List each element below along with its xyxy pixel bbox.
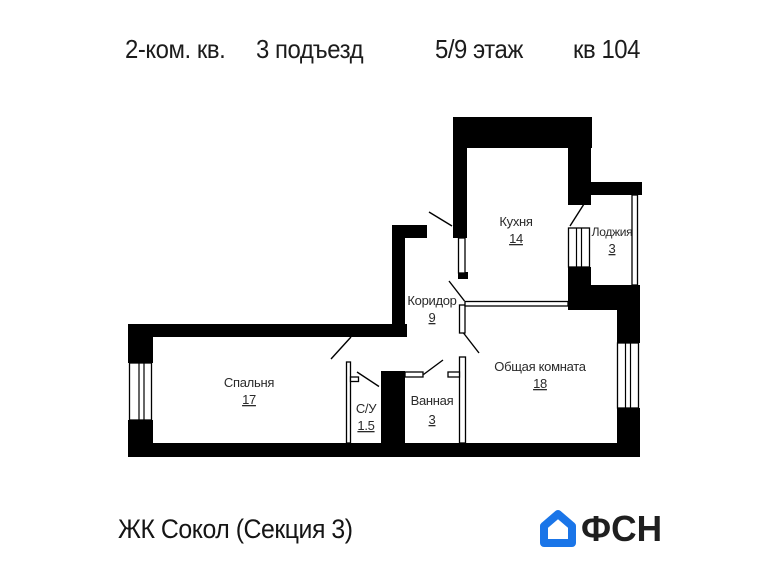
room-label-living: Общая комната bbox=[494, 359, 586, 374]
partition-bath-jamb-left bbox=[405, 372, 423, 377]
room-label-kitchen: Кухня bbox=[499, 214, 533, 229]
room-area-corridor: 9 bbox=[429, 310, 436, 325]
wall-living-right-upper bbox=[617, 310, 640, 343]
door-bath-swing bbox=[424, 360, 444, 375]
door-entrance-swing bbox=[429, 212, 452, 226]
partition-bath-right bbox=[460, 357, 466, 443]
window-kitchen-loggia bbox=[569, 228, 590, 267]
wall-kitchen-top bbox=[453, 117, 592, 148]
wall-kitchen-left bbox=[453, 117, 467, 238]
room-area-bedroom: 17 bbox=[242, 392, 256, 407]
partition-kitchen-jamb bbox=[459, 238, 466, 273]
partition-living-top bbox=[465, 302, 568, 307]
window-bedroom bbox=[130, 363, 152, 420]
house-icon bbox=[538, 509, 578, 549]
project-name-label: ЖК Сокол (Секция 3) bbox=[118, 514, 353, 545]
door-bedroom-swing bbox=[331, 337, 351, 359]
wall-entry-vertical bbox=[392, 225, 405, 337]
developer-logo: ФСН bbox=[538, 508, 664, 550]
wall-bottom bbox=[128, 443, 640, 457]
room-label-bath: Ванная bbox=[411, 393, 454, 408]
partition-wc-left bbox=[347, 362, 351, 443]
window-living bbox=[618, 343, 639, 408]
room-area-wc: 1.5 bbox=[357, 418, 374, 433]
room-label-wc: С/У bbox=[356, 401, 377, 416]
wall-bedroom-top bbox=[128, 324, 407, 337]
room-label-loggia: Лоджия bbox=[592, 225, 633, 239]
room-area-kitchen: 14 bbox=[509, 231, 523, 246]
partition-bath-jamb-right bbox=[448, 372, 460, 377]
room-label-bedroom: Спальня bbox=[224, 375, 274, 390]
room-area-loggia: 3 bbox=[609, 241, 616, 256]
wall-kitchen-right-upper bbox=[568, 148, 591, 205]
wall-entry-horizontal bbox=[392, 225, 427, 238]
door-wc-swing bbox=[357, 372, 379, 387]
wall-wc-bath-divider bbox=[381, 371, 405, 443]
logo-text: ФСН bbox=[581, 508, 662, 550]
door-living-swing bbox=[464, 333, 480, 353]
wall-left-lower bbox=[128, 420, 153, 457]
partitions bbox=[347, 238, 569, 443]
room-area-living: 18 bbox=[533, 376, 547, 391]
room-area-bath: 3 bbox=[429, 412, 436, 427]
wall-loggia-top bbox=[590, 182, 642, 195]
window-loggia-glazing bbox=[632, 195, 638, 285]
room-label-corridor: Коридор bbox=[407, 293, 456, 308]
floor-plan: Кухня 14 Лоджия 3 Коридор 9 Общая комнат… bbox=[0, 0, 768, 576]
walls bbox=[128, 117, 642, 457]
wall-loggia-bottom-block bbox=[568, 285, 640, 310]
partition-living-jamb bbox=[460, 305, 466, 333]
partition-wc-tick bbox=[351, 377, 359, 382]
door-loggia-swing bbox=[570, 204, 584, 226]
